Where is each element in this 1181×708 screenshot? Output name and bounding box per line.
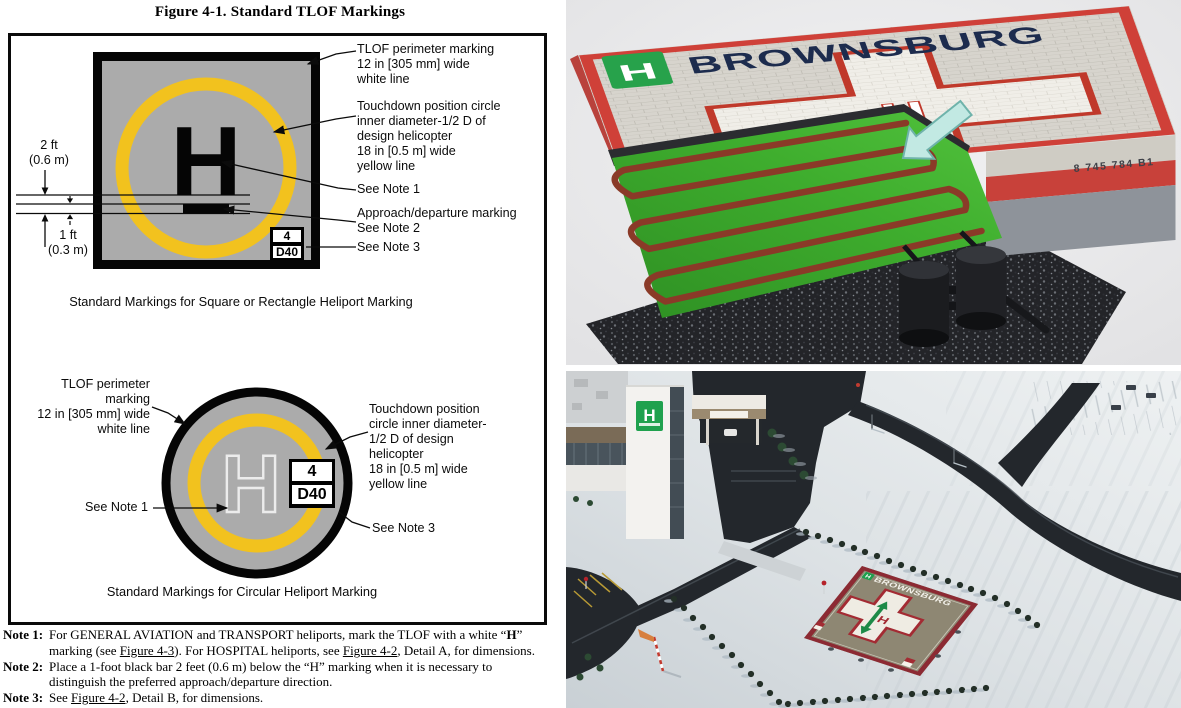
dimension-label-1ft: 1 ft (0.3 m) xyxy=(30,228,106,258)
building-sign-letter: H xyxy=(643,406,655,425)
note-text-segment: See xyxy=(49,690,71,705)
label-perimeter-square: TLOF perimeter marking 12 in [305 mm] wi… xyxy=(357,42,494,87)
note-text-segment: ). For HOSPITAL heliports, see xyxy=(174,643,343,658)
size-box-bottom-value: D40 xyxy=(272,245,302,259)
note-2: Note 2: Place a 1-foot black bar 2 feet … xyxy=(3,659,551,691)
label-touchdown-circular: Touchdown position circle inner diameter… xyxy=(369,402,487,492)
note-1-text: For GENERAL AVIATION and TRANSPORT helip… xyxy=(49,627,551,659)
label-perimeter-circular: TLOF perimeter marking 12 in [305 mm] wi… xyxy=(25,377,150,437)
label-see-note1-square: See Note 1 xyxy=(357,182,420,197)
note-text-segment: , Detail A, for dimensions. xyxy=(397,643,535,658)
beacon-light xyxy=(856,383,860,387)
adjacent-roof xyxy=(566,371,628,423)
label-see-note3-square: See Note 3 xyxy=(357,240,420,255)
label-touchdown-square: Touchdown position circle inner diameter… xyxy=(357,99,501,174)
entrance-canopy xyxy=(692,395,766,445)
caption-circular: Standard Markings for Circular Heliport … xyxy=(8,584,476,599)
label-see-note1-circular: See Note 1 xyxy=(85,500,148,515)
note-3: Note 3: See Figure 4-2, Detail B, for di… xyxy=(3,690,551,706)
caption-square: Standard Markings for Square or Rectangl… xyxy=(8,294,474,309)
label-see-note3-circular: See Note 3 xyxy=(372,521,435,536)
size-box-square: 4 D40 xyxy=(270,227,304,260)
note-text-segment: , Detail B, for dimensions. xyxy=(126,690,264,705)
note-2-text: Place a 1-foot black bar 2 feet (0.6 m) … xyxy=(49,659,551,691)
deck-front-face: 8 745 784 B1 xyxy=(986,135,1176,257)
note-text-segment: H xyxy=(506,627,516,642)
size-box-top-value: 4 xyxy=(272,229,302,243)
note-text-segment: Place a 1-foot black bar 2 feet (0.6 m) … xyxy=(49,659,492,690)
helipad-aerial-photo: H xyxy=(566,371,1181,708)
figure-link[interactable]: Figure 4-3 xyxy=(120,643,175,658)
figure-link[interactable]: Figure 4-2 xyxy=(71,690,126,705)
tlof-figure-panel: Figure 4-1. Standard TLOF Markings H xyxy=(0,0,560,708)
note-1-label: Note 1: xyxy=(3,627,49,659)
document-page: Figure 4-1. Standard TLOF Markings H xyxy=(0,0,1181,708)
size-box-bottom-value-2: D40 xyxy=(291,484,333,505)
car xyxy=(724,429,737,436)
size-box-top-value-2: 4 xyxy=(291,461,333,482)
figure-notes: Note 1: For GENERAL AVIATION and TRANSPO… xyxy=(3,627,551,706)
note-2-label: Note 2: xyxy=(3,659,49,691)
figure-title: Figure 4-1. Standard TLOF Markings xyxy=(0,3,560,21)
note-text-segment: For GENERAL AVIATION and TRANSPORT helip… xyxy=(49,627,506,642)
note-3-label: Note 3: xyxy=(3,690,49,706)
note-3-text: See Figure 4-2, Detail B, for dimensions… xyxy=(49,690,551,706)
note-1: Note 1: For GENERAL AVIATION and TRANSPO… xyxy=(3,627,551,659)
figure-link[interactable]: Figure 4-2 xyxy=(343,643,398,658)
dimension-label-2ft: 2 ft (0.6 m) xyxy=(11,138,87,168)
label-approach-square: Approach/departure marking See Note 2 xyxy=(357,206,517,236)
heated-helipad-render-image: H H BROWNSBURG 8 745 784 B1 xyxy=(566,0,1181,365)
size-box-circular: 4 D40 xyxy=(289,459,335,508)
